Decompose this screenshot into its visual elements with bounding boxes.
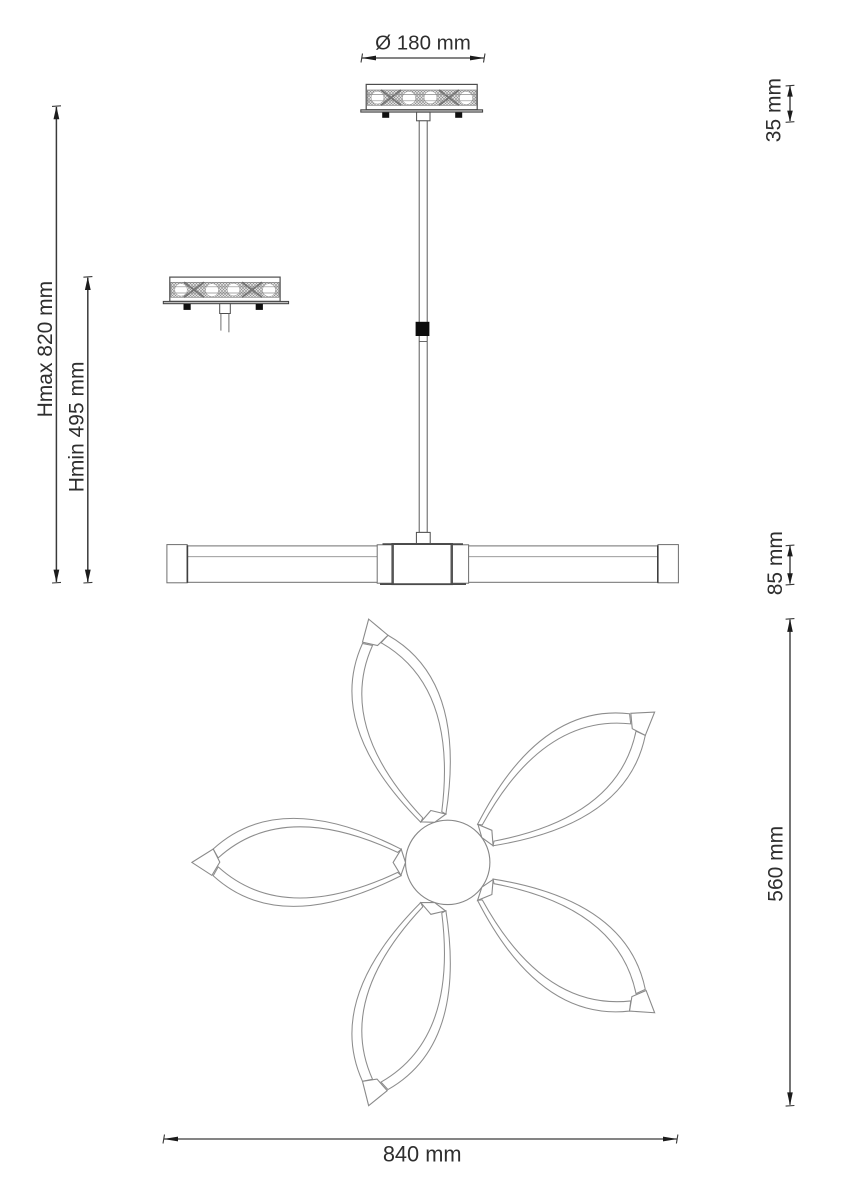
- svg-text:85 mm: 85 mm: [764, 531, 787, 595]
- svg-text:Ø 180 mm: Ø 180 mm: [375, 31, 471, 54]
- svg-text:840 mm: 840 mm: [383, 1141, 462, 1166]
- svg-text:Hmax 820 mm: Hmax 820 mm: [34, 281, 57, 418]
- svg-text:560 mm: 560 mm: [764, 826, 787, 902]
- svg-text:35 mm: 35 mm: [763, 78, 786, 142]
- svg-text:Hmin 495 mm: Hmin 495 mm: [66, 362, 89, 493]
